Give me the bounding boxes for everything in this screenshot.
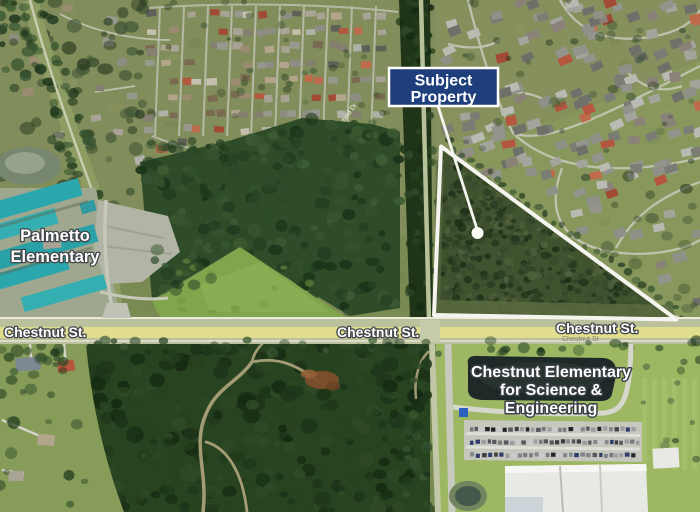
svg-text:Chestnut St.: Chestnut St. bbox=[4, 324, 86, 340]
svg-text:for Science &: for Science & bbox=[500, 382, 603, 399]
svg-text:Palmetto: Palmetto bbox=[20, 227, 90, 245]
svg-text:Engineering: Engineering bbox=[505, 400, 597, 417]
svg-text:Chestnut Elementary: Chestnut Elementary bbox=[471, 364, 631, 381]
svg-text:Elementary: Elementary bbox=[11, 248, 101, 266]
svg-text:Chestnut St: Chestnut St bbox=[562, 336, 599, 343]
svg-text:Chestnut St.: Chestnut St. bbox=[337, 324, 419, 340]
svg-text:Property: Property bbox=[411, 89, 477, 106]
svg-text:Chestnut St.: Chestnut St. bbox=[556, 320, 638, 336]
svg-text:Subject: Subject bbox=[415, 73, 473, 90]
